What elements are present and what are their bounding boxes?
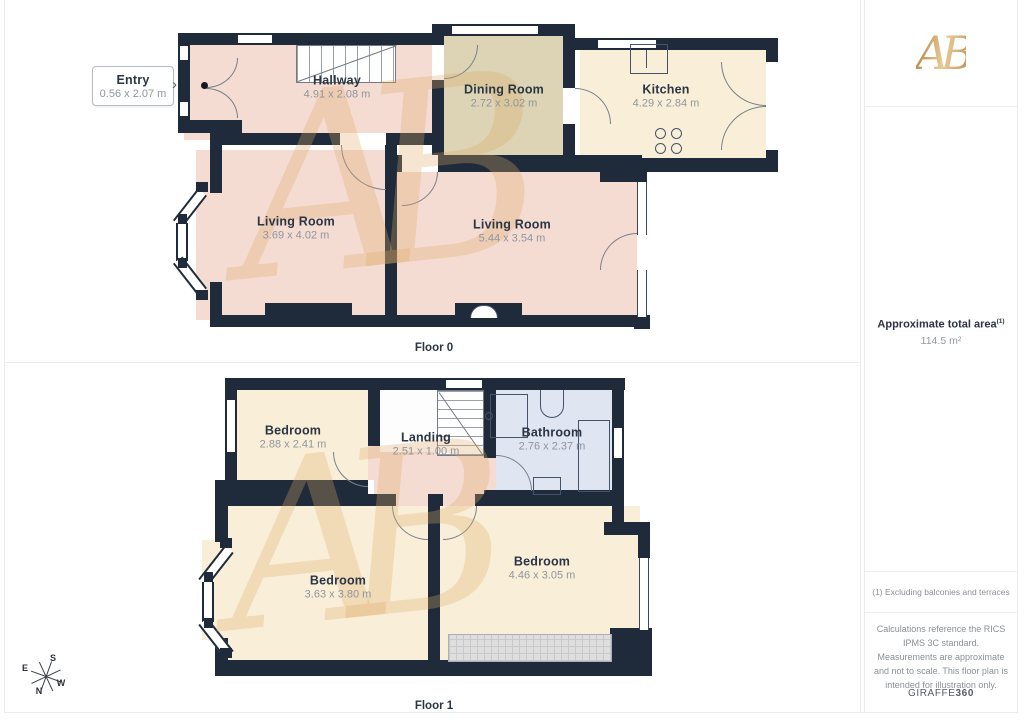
total-area-value: 114.5 m² <box>864 335 1018 347</box>
window <box>446 378 482 390</box>
window <box>178 46 190 60</box>
stove-burner <box>655 128 666 139</box>
sink-basin <box>540 390 564 418</box>
door-opening <box>368 446 380 480</box>
compass-south: S <box>50 653 56 663</box>
wall <box>196 290 208 300</box>
entry-callout: Entry 0.56 x 2.07 m <box>92 66 174 106</box>
stove-burner <box>655 143 666 154</box>
window <box>225 400 237 452</box>
wall <box>215 494 228 542</box>
frame-left-border <box>4 0 5 712</box>
toilet <box>533 477 561 495</box>
room-name: Hallway <box>304 74 371 88</box>
window <box>452 24 538 36</box>
wall <box>638 535 650 558</box>
window <box>612 428 624 458</box>
room-label-bedroom3: Bedroom 4.46 x 3.05 m <box>509 555 576 582</box>
wall <box>178 214 187 224</box>
room-dims: 0.56 x 2.07 m <box>93 88 173 100</box>
window <box>637 270 647 317</box>
wall <box>204 572 213 582</box>
brand-text-bold: 360 <box>956 688 975 699</box>
room-dims: 2.51 x 1.00 m <box>393 446 460 458</box>
balcony-hatched-area <box>448 634 612 662</box>
total-area-label-text: Approximate total area <box>877 319 996 331</box>
wall <box>220 538 232 548</box>
room-name: Bathroom <box>519 426 586 440</box>
room-name: Landing <box>393 431 460 445</box>
window <box>637 182 647 235</box>
door-opening <box>340 133 386 145</box>
wall <box>178 258 187 268</box>
room-label-landing: Landing 2.51 x 1.00 m <box>393 431 460 458</box>
wall <box>225 480 368 494</box>
room-dims: 2.88 x 2.41 m <box>260 439 327 451</box>
door-opening <box>402 155 438 172</box>
wall <box>600 158 647 182</box>
room-dims: 3.69 x 4.02 m <box>257 230 335 242</box>
room-name: Dining Room <box>464 83 544 97</box>
window <box>178 102 190 116</box>
total-area-footnote-ref: (1) <box>997 318 1005 325</box>
door-opening <box>396 494 428 506</box>
footnote-text: (1) Excluding balconies and terraces <box>866 587 1016 597</box>
stove-burner <box>671 128 682 139</box>
wall <box>220 648 232 658</box>
room-name: Bedroom <box>509 555 576 569</box>
room-label-bedroom1: Bedroom 2.88 x 2.41 m <box>260 424 327 451</box>
room-name: Living Room <box>257 215 335 229</box>
wall <box>210 133 222 193</box>
room-name: Bedroom <box>305 574 372 588</box>
giraffe360-brand: GIRAFFE360 <box>864 688 1018 699</box>
wall <box>368 378 380 446</box>
frame-bottom-border <box>4 712 1018 713</box>
door-opening <box>432 45 444 80</box>
room-dims: 4.91 x 2.08 m <box>304 89 371 101</box>
room-dims: 4.29 x 2.84 m <box>633 98 700 110</box>
floor0-label: Floor 0 <box>415 342 453 354</box>
floorplan-page: AB <box>0 0 1024 724</box>
compass-west: W <box>57 678 66 688</box>
shower-control <box>485 412 493 420</box>
wall <box>385 145 397 327</box>
sidebar-footnote-section: (1) Excluding balconies and terraces <box>864 572 1018 613</box>
window <box>238 33 272 45</box>
room-label-living1: Living Room 3.69 x 4.02 m <box>257 215 335 242</box>
wall <box>428 494 440 672</box>
total-area-label: Approximate total area(1) <box>864 318 1018 331</box>
wall <box>196 182 208 192</box>
kitchen-sink-tap <box>646 50 647 68</box>
total-area-block: Approximate total area(1) 114.5 m² <box>864 318 1018 347</box>
wall <box>210 133 432 145</box>
room-dims: 5.44 x 3.54 m <box>473 233 551 245</box>
panel-separator <box>4 362 861 363</box>
room-label-hallway: Hallway 4.91 x 2.08 m <box>304 74 371 101</box>
wall <box>604 522 650 535</box>
callout-arrow: › <box>172 76 177 93</box>
door-opening <box>443 494 475 506</box>
floor1-label: Floor 1 <box>415 700 453 712</box>
kitchen-sink <box>630 44 668 74</box>
stove-burner <box>671 143 682 154</box>
frame-main-right-border <box>860 0 861 712</box>
sidebar-disclaimer-section: Calculations reference the RICS IPMS 3C … <box>864 613 1018 712</box>
door-opening <box>563 88 575 124</box>
door-pivot-dot <box>201 82 208 89</box>
wall <box>178 33 432 45</box>
room-name: Entry <box>93 73 173 87</box>
door-opening <box>766 62 778 150</box>
room-label-bathroom: Bathroom 2.76 x 2.37 m <box>519 426 586 453</box>
bay-window-segment <box>202 582 214 622</box>
room-name: Kitchen <box>633 83 700 97</box>
room-label-kitchen: Kitchen 4.29 x 2.84 m <box>633 83 700 110</box>
wall <box>215 660 652 676</box>
room-name: Living Room <box>473 218 551 232</box>
wall <box>225 378 625 390</box>
sidebar-area-section: Approximate total area(1) 114.5 m² <box>864 107 1018 572</box>
room-dims: 2.72 x 3.02 m <box>464 98 544 110</box>
wall <box>204 618 213 628</box>
chimney-breast <box>265 303 352 327</box>
wall <box>178 120 242 133</box>
compass-north: N <box>36 686 43 696</box>
brand-text-regular: GIRAFFE <box>908 688 956 699</box>
room-name: Bedroom <box>260 424 327 438</box>
door-opening <box>637 235 647 270</box>
room-dims: 2.76 x 2.37 m <box>519 441 586 453</box>
compass-east: E <box>22 663 28 673</box>
wall <box>610 628 652 676</box>
room-label-living2: Living Room 5.44 x 3.54 m <box>473 218 551 245</box>
room-label-dining: Dining Room 2.72 x 3.02 m <box>464 83 544 110</box>
room-label-bedroom2: Bedroom 3.63 x 3.80 m <box>305 574 372 601</box>
brand-logo-monogram: AB <box>916 26 966 80</box>
room-dims: 4.46 x 3.05 m <box>509 570 576 582</box>
window <box>639 558 649 630</box>
room-dims: 3.63 x 3.80 m <box>305 589 372 601</box>
disclaimer-text: Calculations reference the RICS IPMS 3C … <box>864 613 1018 693</box>
sidebar-logo-section: AB <box>864 0 1018 107</box>
door-opening <box>484 458 496 490</box>
